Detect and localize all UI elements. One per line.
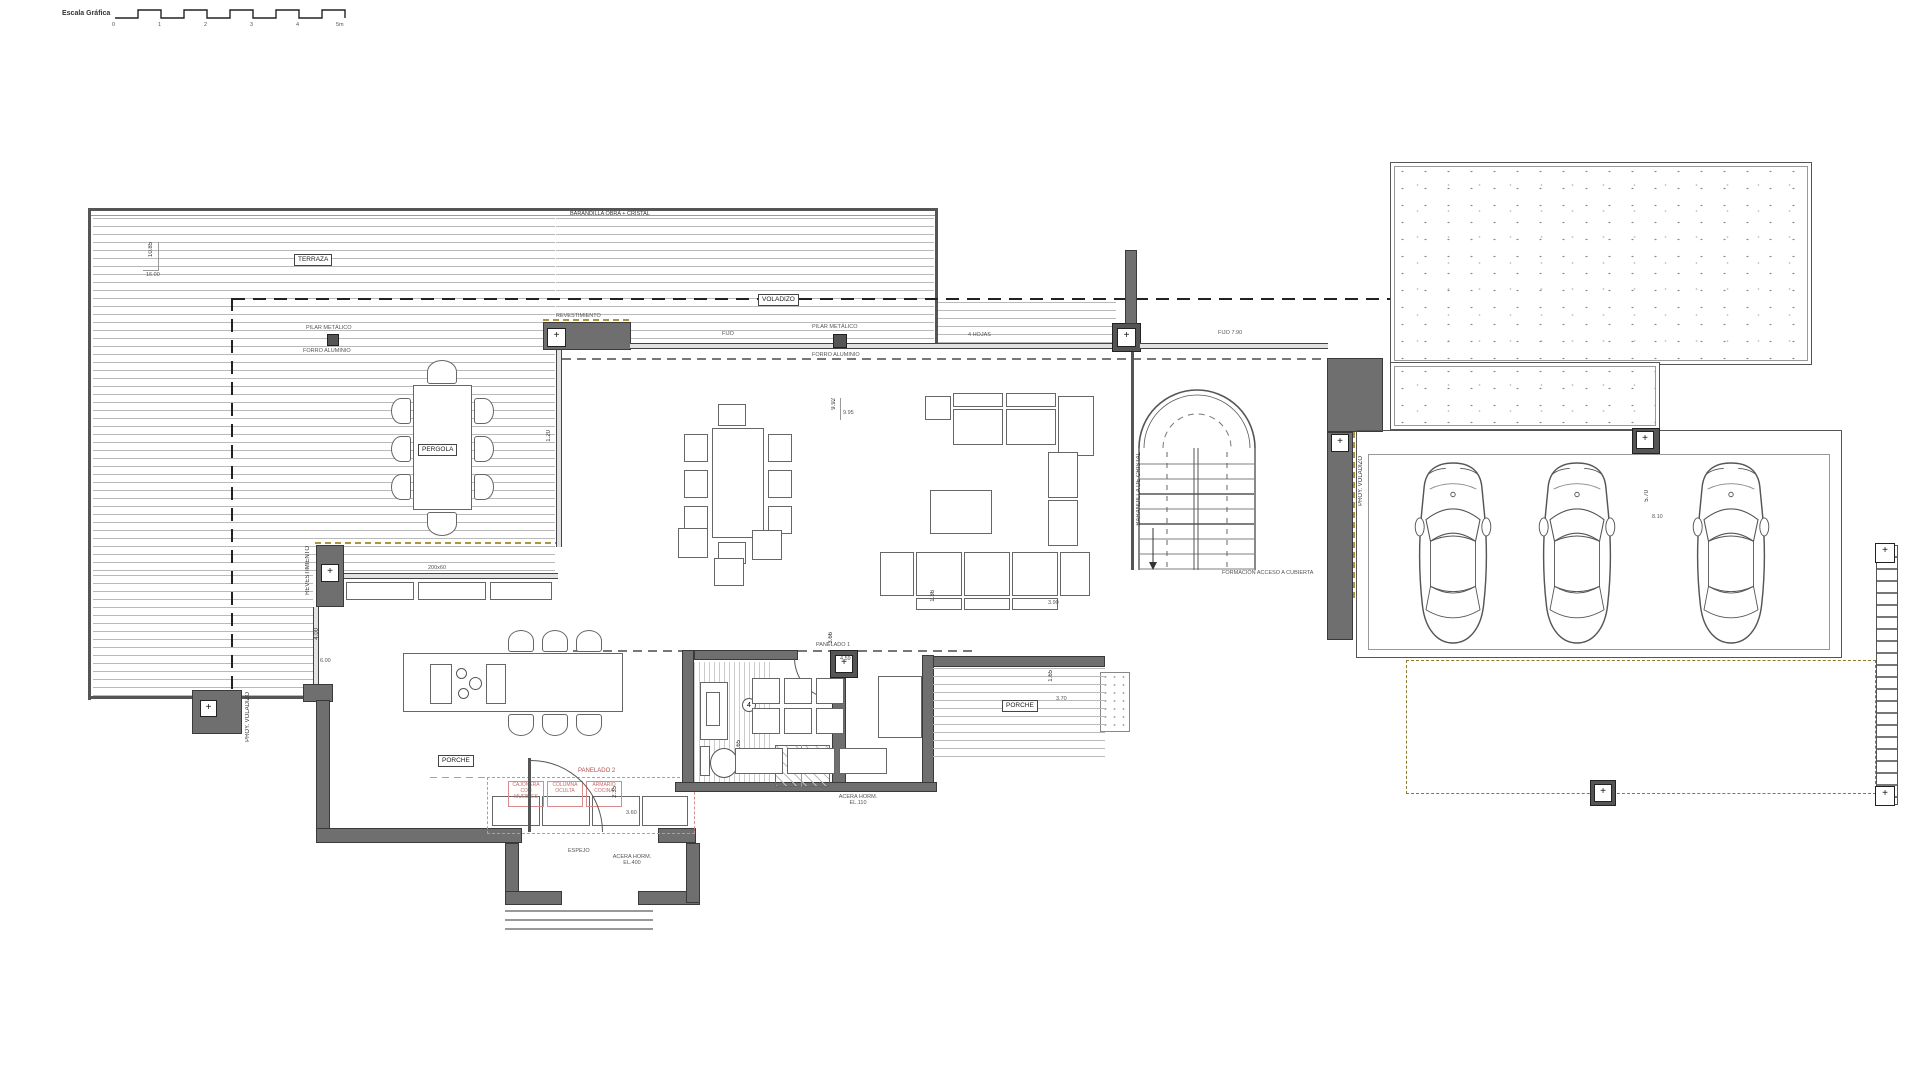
pillar-plus-icon [1875, 543, 1895, 563]
acera-label: ACERA HORM. EL.400 [608, 854, 656, 867]
scale-tick: 5m [336, 22, 344, 28]
tv-bench [1048, 452, 1078, 498]
sofa-back [1006, 393, 1056, 407]
scale-tick: 4 [296, 22, 299, 28]
dining-table [712, 428, 764, 538]
dim-label: 16.00 [146, 272, 160, 278]
sofa-back [953, 393, 1003, 407]
counter [490, 582, 552, 600]
dim-label: 4.59 [840, 656, 851, 662]
pillar-plus-icon [547, 328, 566, 347]
fijo-label: FIJO [722, 331, 734, 337]
porch-wall [933, 656, 1105, 667]
chair [474, 398, 494, 424]
sofa-seat [1006, 409, 1056, 445]
forro-label: FORRO ALUMINIO [303, 348, 351, 354]
chair [391, 436, 411, 462]
bench [735, 748, 783, 774]
sofa-module [816, 708, 844, 734]
pergola-label: PERGOLA [418, 444, 457, 456]
pillar-plus-icon [1636, 431, 1654, 449]
stool [576, 714, 602, 736]
pillar-plus-icon [200, 700, 217, 717]
panelado-label: PANELADO 2 [578, 768, 615, 775]
stool [508, 630, 534, 652]
chair [391, 474, 411, 500]
counter [418, 582, 486, 600]
pillar-plus-icon [321, 564, 339, 582]
sofa-module [784, 678, 812, 704]
chair [474, 436, 494, 462]
pillar-plus-icon [1594, 784, 1612, 802]
fijo-label: FIJO 7.90 [1218, 330, 1242, 336]
espejo-label: ESPEJO [568, 848, 590, 854]
kitchen-west-glazing [313, 607, 319, 688]
dim-bracket [840, 398, 841, 420]
chaise [878, 676, 922, 738]
wc-bowl [710, 748, 738, 778]
forro-label: FORRO ALUMINIO [812, 352, 860, 358]
car-icon [1686, 458, 1776, 648]
pillar-plus-icon [1117, 328, 1136, 347]
dim-label: 6.00 [320, 658, 331, 664]
scale-tick: 0 [112, 22, 115, 28]
sofa-back [916, 598, 962, 610]
overhang-dashed-line [562, 358, 1327, 360]
entry-wall [686, 843, 700, 903]
step-line [505, 928, 653, 930]
entry-wall [505, 891, 562, 905]
stair-note: FORMACIÓN ACCESO A CUBIERTA [1222, 570, 1313, 576]
wall-stub [1125, 250, 1137, 324]
tv-bench [1048, 500, 1078, 546]
voladizo-label: VOLADIZO [758, 294, 799, 306]
step-line [505, 910, 653, 912]
floor-plan: Escala Gráfica 0 1 2 3 4 5m VOLADIZO BAR… [0, 0, 1913, 1080]
glazing-wall-west [556, 350, 562, 547]
burner-icon [469, 677, 482, 690]
pilar-label: PILAR METÁLICO [306, 325, 352, 331]
step-line [505, 919, 653, 921]
dim-label: 200x60 [428, 565, 446, 571]
bath-wall [694, 650, 798, 660]
bath-wall [682, 650, 694, 792]
terrace-border [935, 208, 938, 344]
chair [474, 474, 494, 500]
insulation-dashed [1353, 432, 1355, 602]
car-icon [1408, 458, 1498, 648]
terraza-label: TERRAZA [294, 254, 332, 266]
sofa-module [816, 678, 844, 704]
hojas-label: 4 HOJAS [968, 332, 991, 338]
terrace-deck [93, 218, 555, 575]
gravel-area [1390, 162, 1812, 365]
dim-label: 8.10 [1652, 514, 1663, 520]
scale-tick: 3 [250, 22, 253, 28]
wall-block [1327, 358, 1383, 432]
bench [787, 748, 835, 774]
dim-label: 4.00 [314, 628, 320, 640]
island-board [486, 664, 506, 704]
revestimiento-label: REVESTIMIENTO [556, 313, 601, 319]
stool [542, 630, 568, 652]
dim-label: 1.20 [546, 430, 552, 442]
dim-label: 9.95 [843, 410, 854, 416]
scale-tick: 1 [158, 22, 161, 28]
gravel-strip [1390, 362, 1660, 430]
dim-label: 2.35 [612, 786, 618, 798]
chair [718, 404, 746, 426]
car-icon [1532, 458, 1622, 648]
burner-icon [458, 688, 469, 699]
coffee-table [930, 490, 992, 534]
chair [684, 470, 708, 498]
porche-label: PORCHE [438, 755, 474, 767]
chair [427, 360, 457, 384]
staircase [1131, 378, 1263, 574]
dim-label: 5.70 [1644, 490, 1650, 502]
proy-voladizo-label: PROY. VOLADIZO [245, 692, 251, 742]
terrace-border [88, 215, 938, 216]
chaise [1058, 396, 1094, 456]
dim-label: 9.92 [831, 398, 837, 410]
terrace-deck [936, 302, 1116, 343]
wc-tank [700, 746, 710, 776]
dim-label: 3.90 [1048, 600, 1059, 606]
sofa-arm [1060, 552, 1090, 596]
voladizo-dashed-line [231, 298, 233, 697]
island-sink [430, 664, 452, 704]
stool [508, 714, 534, 736]
sofa-arm [925, 396, 951, 420]
pilar-label: PILAR METÁLICO [812, 324, 858, 330]
scale-bar [113, 4, 349, 24]
east-wall [1327, 432, 1353, 640]
terrace-border [88, 208, 91, 700]
chair [768, 470, 792, 498]
dim-bracket [158, 242, 159, 270]
dim-label: 3.66 [828, 632, 834, 644]
sofa-seat [964, 552, 1010, 596]
glazing-wall [1140, 343, 1328, 349]
revestimiento-label: REVESTIMIENTO [305, 546, 311, 595]
sofa-module [784, 708, 812, 734]
red-annotation-line [430, 777, 487, 778]
stool [576, 630, 602, 652]
porche-label: PORCHE [1002, 700, 1038, 712]
sink [706, 692, 720, 726]
dim-label: 1.36 [930, 590, 936, 602]
kitchen-west-wall [316, 700, 330, 830]
sofa-seat [916, 552, 962, 596]
louver-screen [1876, 545, 1898, 805]
driveway-dashed-rect [1406, 660, 1876, 794]
counter [346, 582, 414, 600]
chair [684, 434, 708, 462]
steel-pillar [833, 334, 847, 348]
kitchen-north-wall [344, 573, 558, 579]
sofa-module [752, 708, 780, 734]
dim-bracket [143, 270, 159, 271]
voladizo-dashed-line [232, 298, 1390, 300]
pillar-plus-icon [1331, 434, 1349, 452]
glazing-wall [630, 343, 1115, 349]
steel-pillar [327, 334, 339, 346]
dim-label: 10.85 [148, 242, 154, 257]
chair [768, 434, 792, 462]
dim-label: 3.60 [626, 810, 637, 816]
sofa-seat [953, 409, 1003, 445]
armchair [880, 552, 914, 596]
pillar-plus-icon [1875, 786, 1895, 806]
side-table [714, 558, 744, 586]
acera-label: ACERA HORM. EL.110 [834, 794, 882, 807]
burner-icon [456, 668, 467, 679]
chair [391, 398, 411, 424]
dim-label: 3.70 [1056, 696, 1067, 702]
bench [839, 748, 887, 774]
chair [427, 512, 457, 536]
sofa-back [964, 598, 1010, 610]
scale-tick: 2 [204, 22, 207, 28]
porch-deck [933, 668, 1105, 760]
railing-label: BARANDILLA OBRA + CRISTAL [570, 211, 650, 217]
sofa-seat [1012, 552, 1058, 596]
stair-rail-label: BARANDILLA DE CRISTAL [1136, 452, 1142, 526]
scale-bar-title: Escala Gráfica [62, 10, 110, 18]
stool [542, 714, 568, 736]
sofa-module [752, 678, 780, 704]
insulation-dashed [315, 542, 558, 544]
terrace-deck [93, 575, 313, 696]
terrace-border [88, 208, 938, 211]
armchair [678, 528, 708, 558]
armchair [752, 530, 782, 560]
dim-label: 1.65 [1048, 670, 1054, 682]
